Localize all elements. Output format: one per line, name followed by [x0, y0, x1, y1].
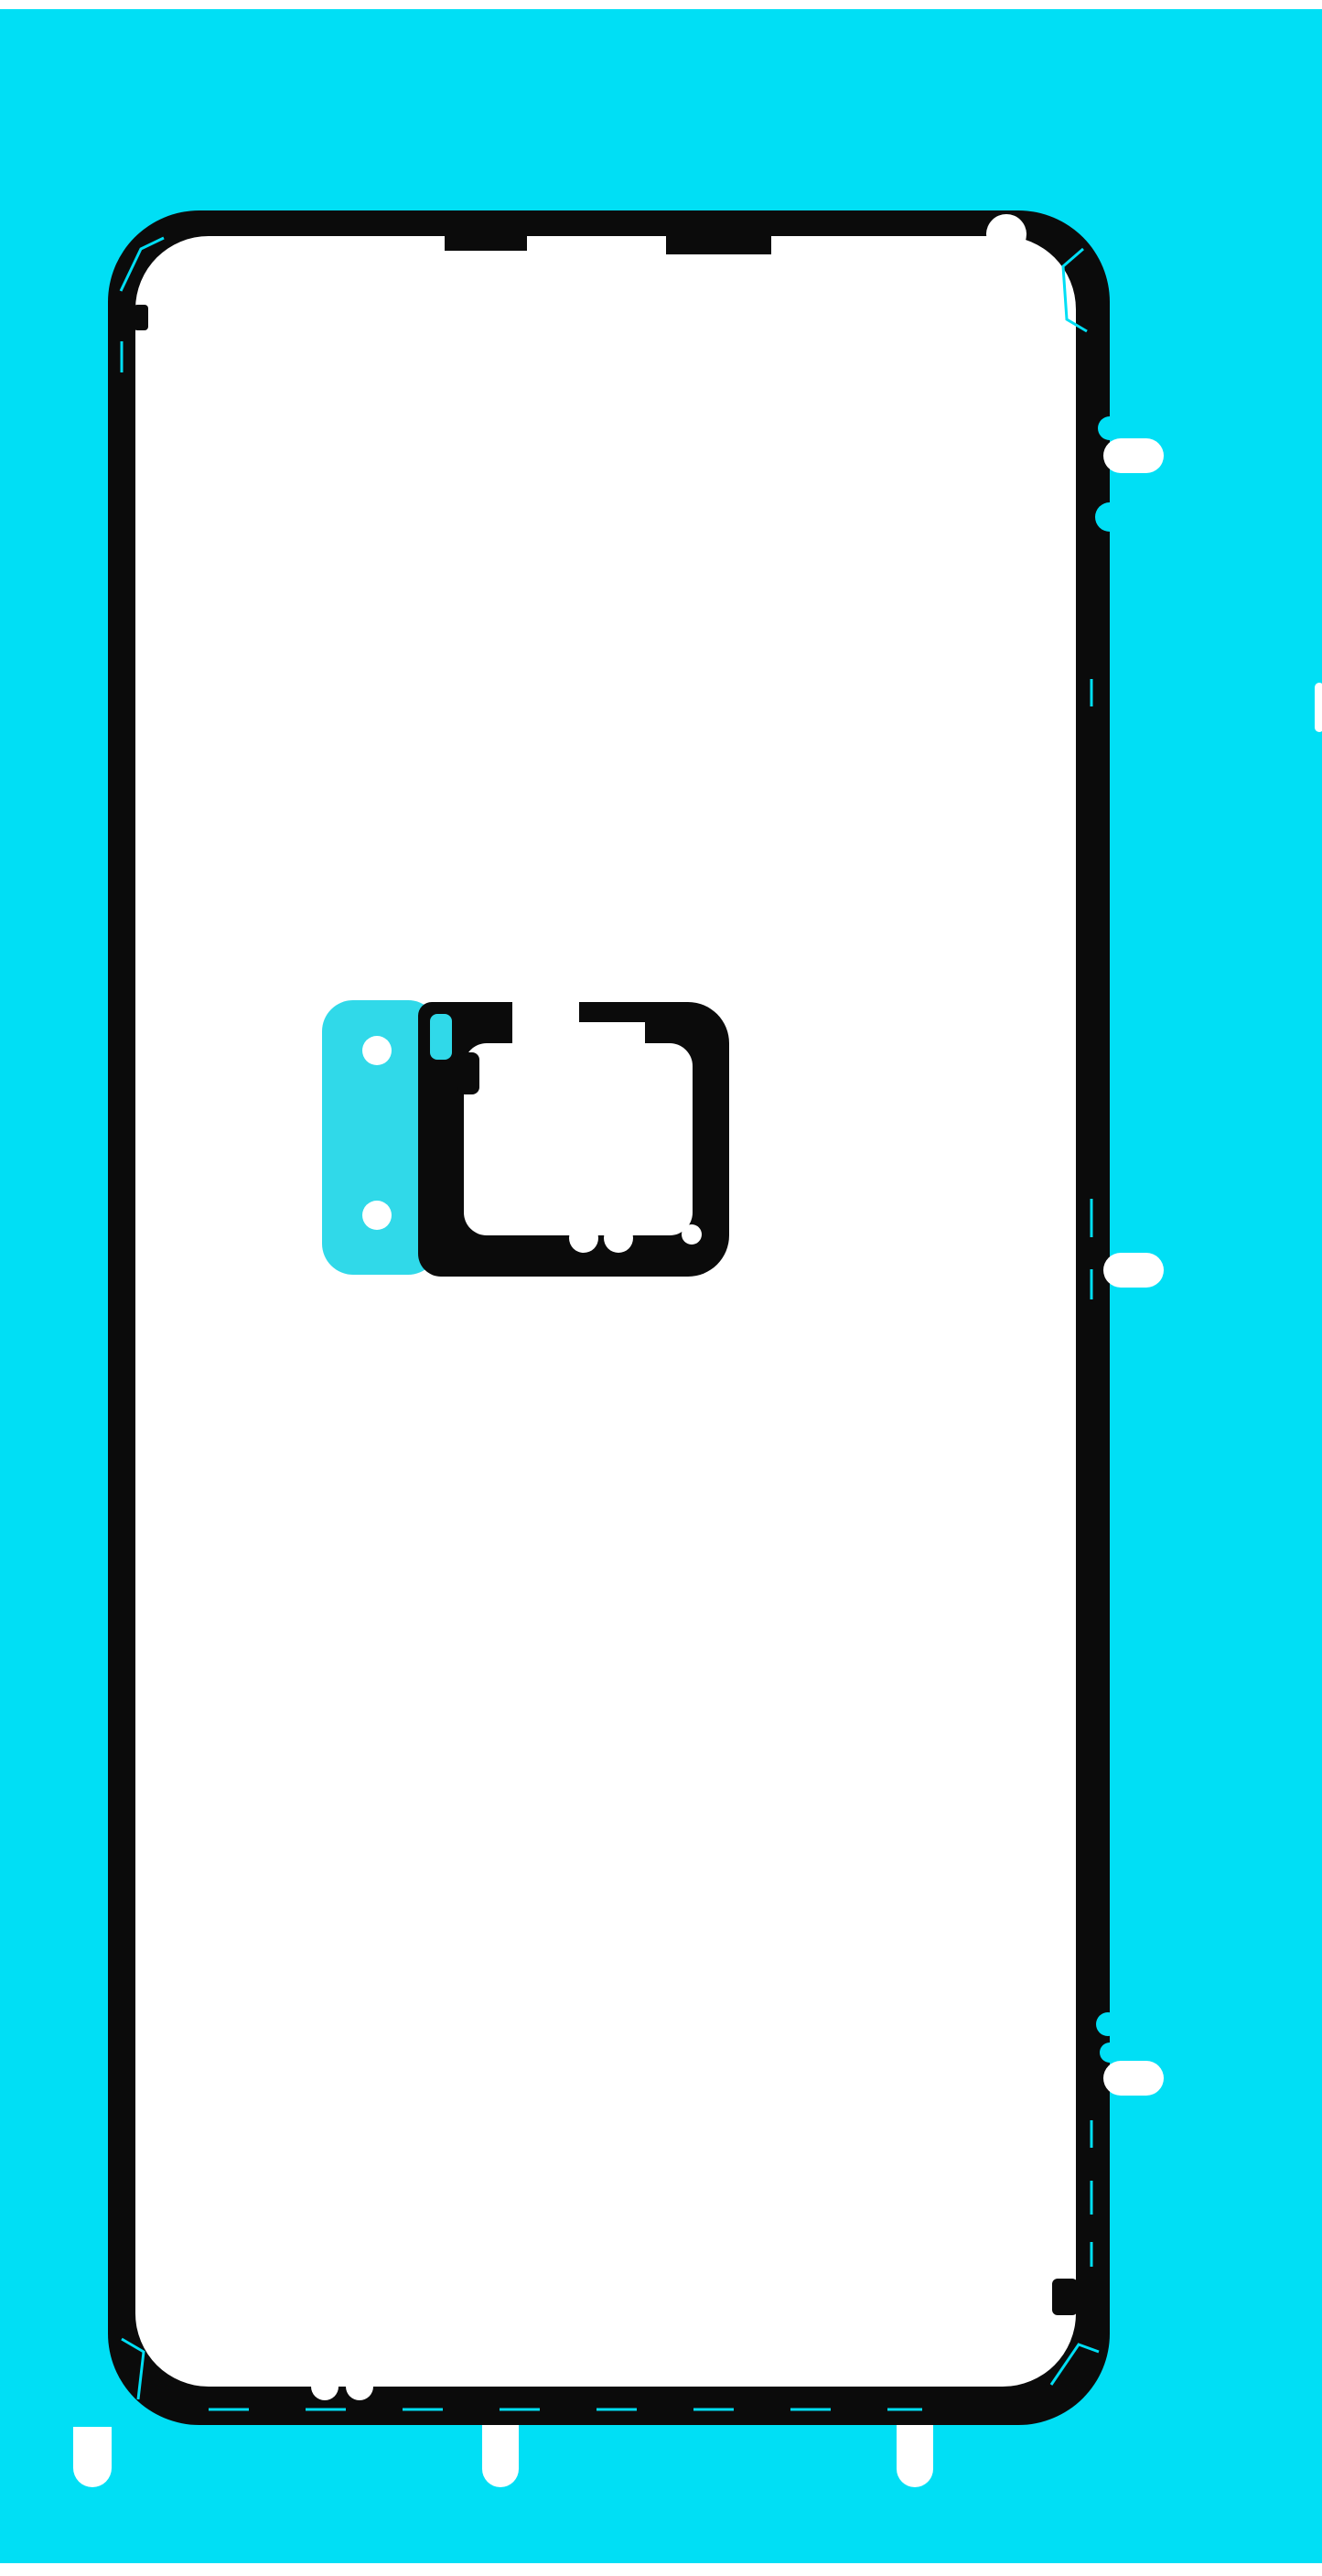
camera-ring-inner-step [457, 1052, 479, 1094]
liner-tab-hole-top [362, 1036, 392, 1065]
pull-tab-bottom-2 [482, 2425, 519, 2487]
scallop-cut [1096, 2012, 1120, 2036]
camera-adhesive-assembly [322, 991, 729, 1277]
pull-tab-right-3 [1103, 2061, 1164, 2096]
product-photo [0, 0, 1322, 2576]
pull-tab-right-1 [1103, 438, 1164, 473]
right-edge-notch [1052, 2279, 1078, 2315]
scallop-cut [1098, 416, 1122, 440]
camera-ring-liner-cutout [430, 1014, 452, 1060]
bottom-edge-scallop-1 [311, 2373, 339, 2400]
top-edge-notch-2 [666, 236, 771, 254]
pull-tab-bottom-3 [897, 2425, 933, 2487]
frame-inner-window [135, 236, 1076, 2387]
liner-tab-hole-bottom [362, 1201, 392, 1230]
camera-ring-scallop-1 [569, 1223, 598, 1253]
left-edge-notch [134, 305, 148, 330]
adhesive-frame [108, 210, 1110, 2425]
scallop-cut [1095, 502, 1124, 532]
pull-tab-bottom-1 [73, 2427, 112, 2487]
camera-ring-window [464, 1043, 693, 1235]
top-edge-camera-arc-relief [986, 214, 1026, 254]
liner-edge-notch [1315, 683, 1322, 732]
camera-ring-scallop-2 [604, 1223, 633, 1253]
camera-ring-scallop-3 [682, 1224, 702, 1245]
pull-tab-right-2 [1103, 1253, 1164, 1288]
bottom-edge-scallop-2 [346, 2373, 373, 2400]
top-edge-notch-1 [445, 236, 527, 251]
camera-ring-top-gap [512, 991, 579, 1048]
scallop-cut [1100, 2042, 1120, 2063]
camera-ring-thin-cut [579, 1022, 645, 1046]
